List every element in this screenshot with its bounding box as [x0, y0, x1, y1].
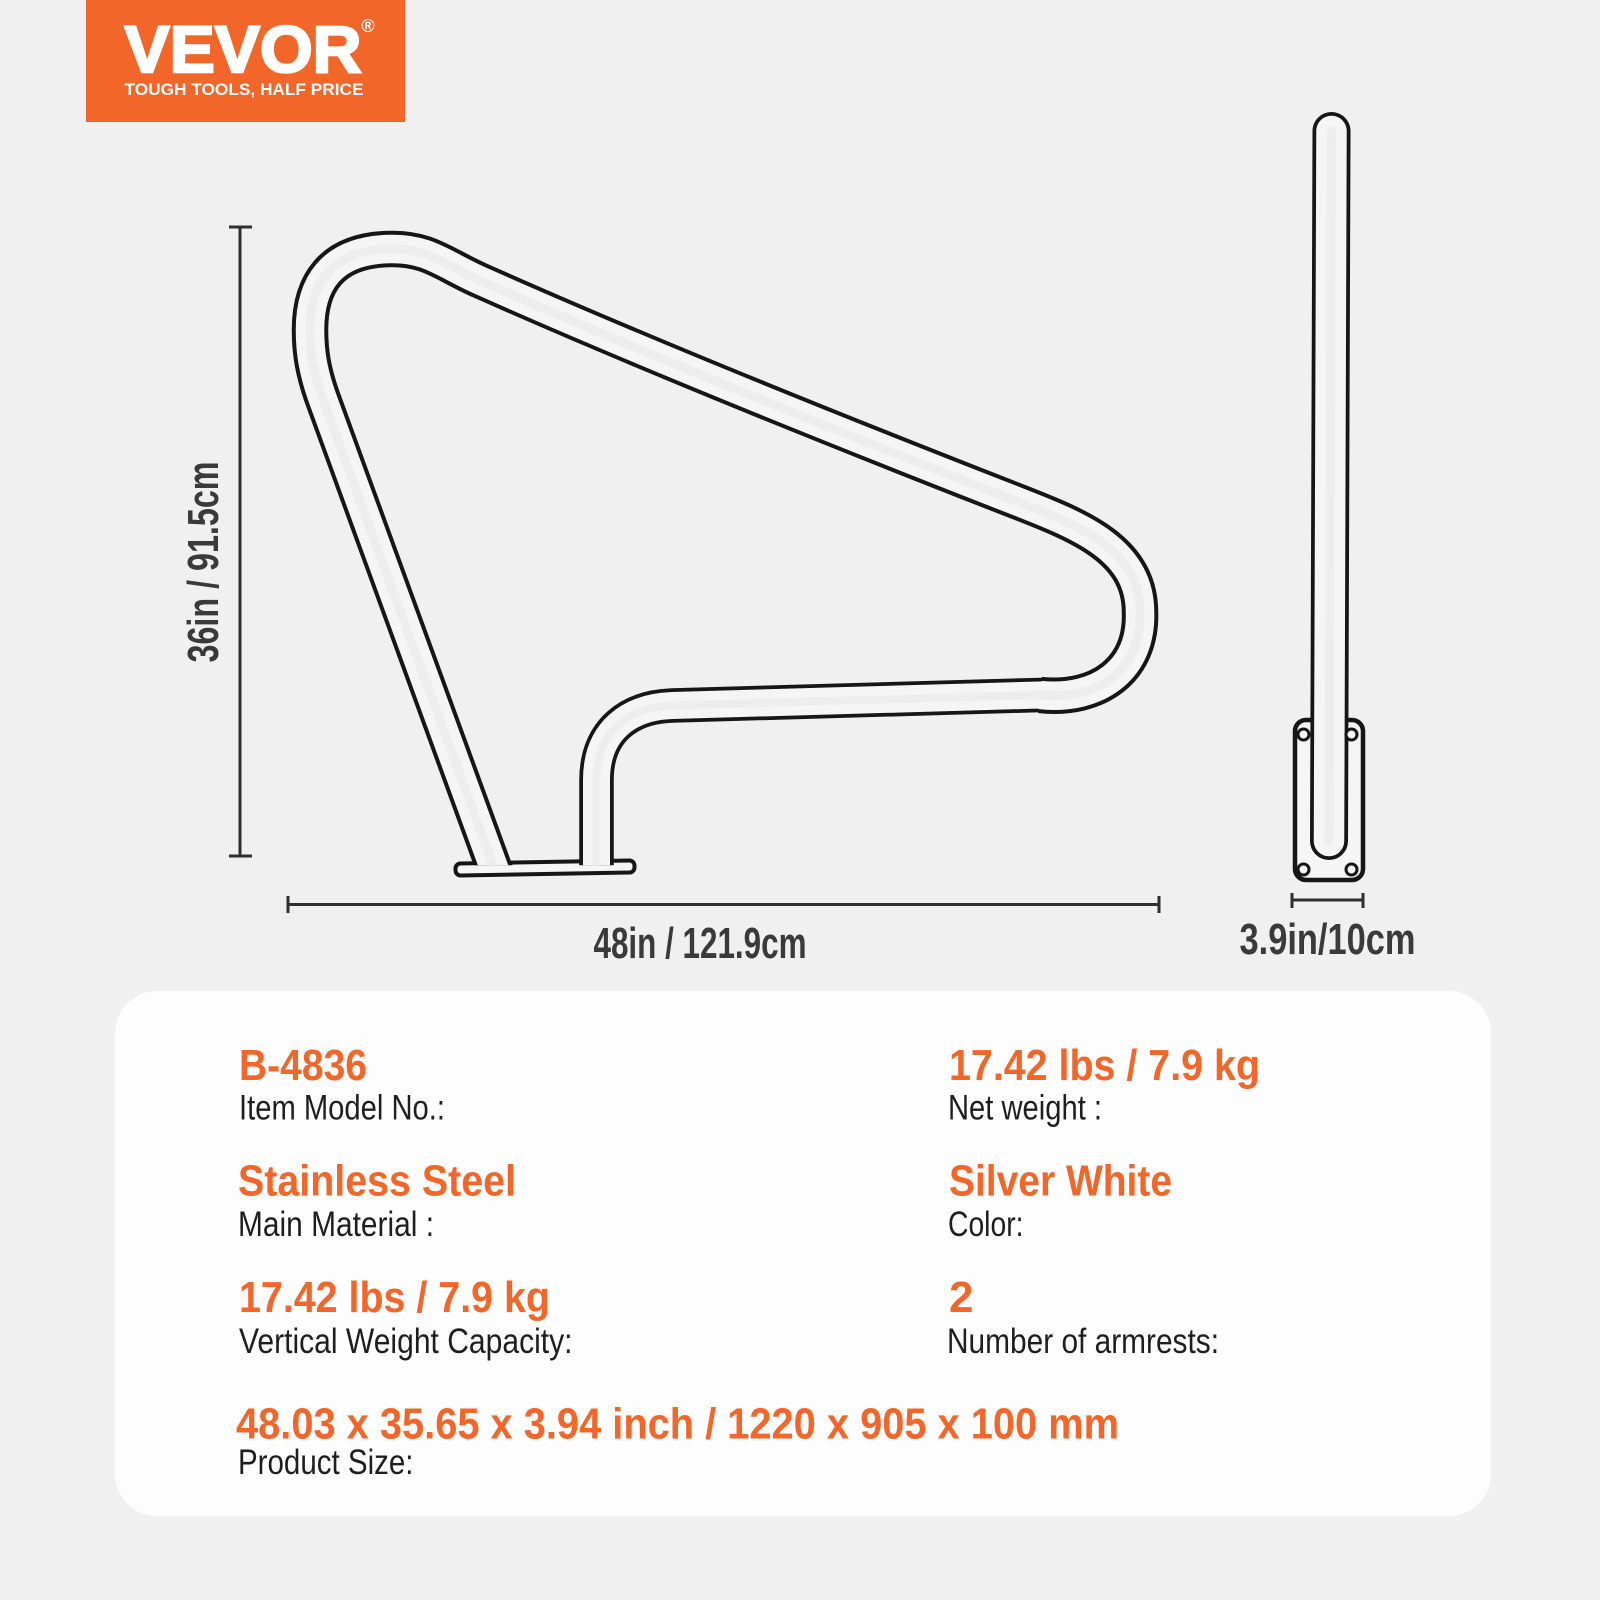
svg-text:®: ® — [361, 16, 374, 36]
svg-text:17.42 lbs / 7.9 kg: 17.42 lbs / 7.9 kg — [239, 1273, 550, 1322]
svg-text:48in / 121.9cm: 48in / 121.9cm — [594, 919, 807, 968]
svg-text:VEVOR: VEVOR — [125, 12, 362, 86]
svg-text:Vertical Weight Capacity:: Vertical Weight Capacity: — [239, 1321, 573, 1361]
svg-text:Number of armrests:: Number of armrests: — [947, 1321, 1219, 1361]
svg-text:17.42 lbs / 7.9 kg: 17.42 lbs / 7.9 kg — [949, 1041, 1260, 1090]
svg-text:Color:: Color: — [948, 1204, 1024, 1244]
svg-text:Stainless Steel: Stainless Steel — [238, 1157, 516, 1206]
svg-text:Main Material :: Main Material : — [238, 1204, 434, 1244]
svg-text:Silver White: Silver White — [949, 1157, 1172, 1206]
svg-text:3.9in/10cm: 3.9in/10cm — [1240, 915, 1416, 964]
svg-text:B-4836: B-4836 — [239, 1041, 367, 1090]
svg-text:Net weight :: Net weight : — [948, 1088, 1102, 1128]
svg-text:TOUGH TOOLS, HALF PRICE: TOUGH TOOLS, HALF PRICE — [125, 81, 364, 99]
svg-text:Item Model No.:: Item Model No.: — [239, 1088, 445, 1128]
svg-text:36in / 91.5cm: 36in / 91.5cm — [179, 462, 228, 663]
svg-text:Product Size:: Product Size: — [238, 1442, 414, 1482]
svg-text:2: 2 — [949, 1273, 973, 1322]
